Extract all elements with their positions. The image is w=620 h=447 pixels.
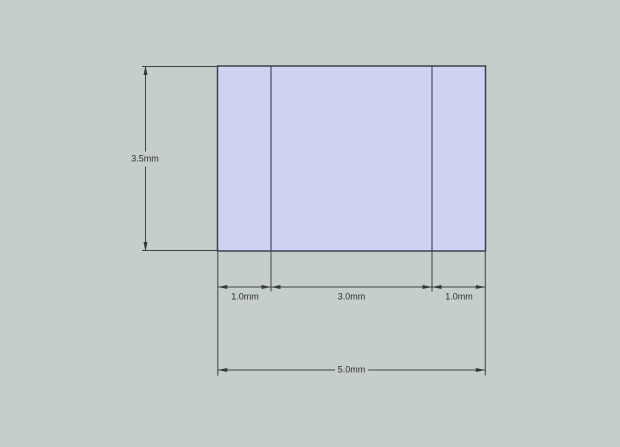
arrow-right-icon: [476, 285, 486, 289]
drawing-viewport: 3.5mm 1.0mm 3.0mm 1.0mm 5.0mm: [0, 0, 620, 447]
dim-label-segment-middle: 3.0mm: [338, 292, 366, 303]
arrow-left-icon: [271, 285, 281, 289]
arrow-left-icon: [432, 285, 442, 289]
dim-label-height: 3.5mm: [128, 154, 162, 165]
face-rectangle: [218, 66, 486, 251]
drawing-geometry: [0, 0, 620, 447]
arrow-right-icon: [262, 285, 272, 289]
dimension-segments-row: [218, 252, 486, 376]
dim-label-segment-right: 1.0mm: [445, 292, 473, 303]
arrow-right-icon: [423, 285, 433, 289]
arrow-right-icon: [476, 368, 486, 372]
arrow-left-icon: [218, 285, 228, 289]
dim-label-segment-left: 1.0mm: [231, 292, 259, 303]
dim-label-overall-width: 5.0mm: [335, 365, 369, 376]
arrow-left-icon: [218, 368, 228, 372]
